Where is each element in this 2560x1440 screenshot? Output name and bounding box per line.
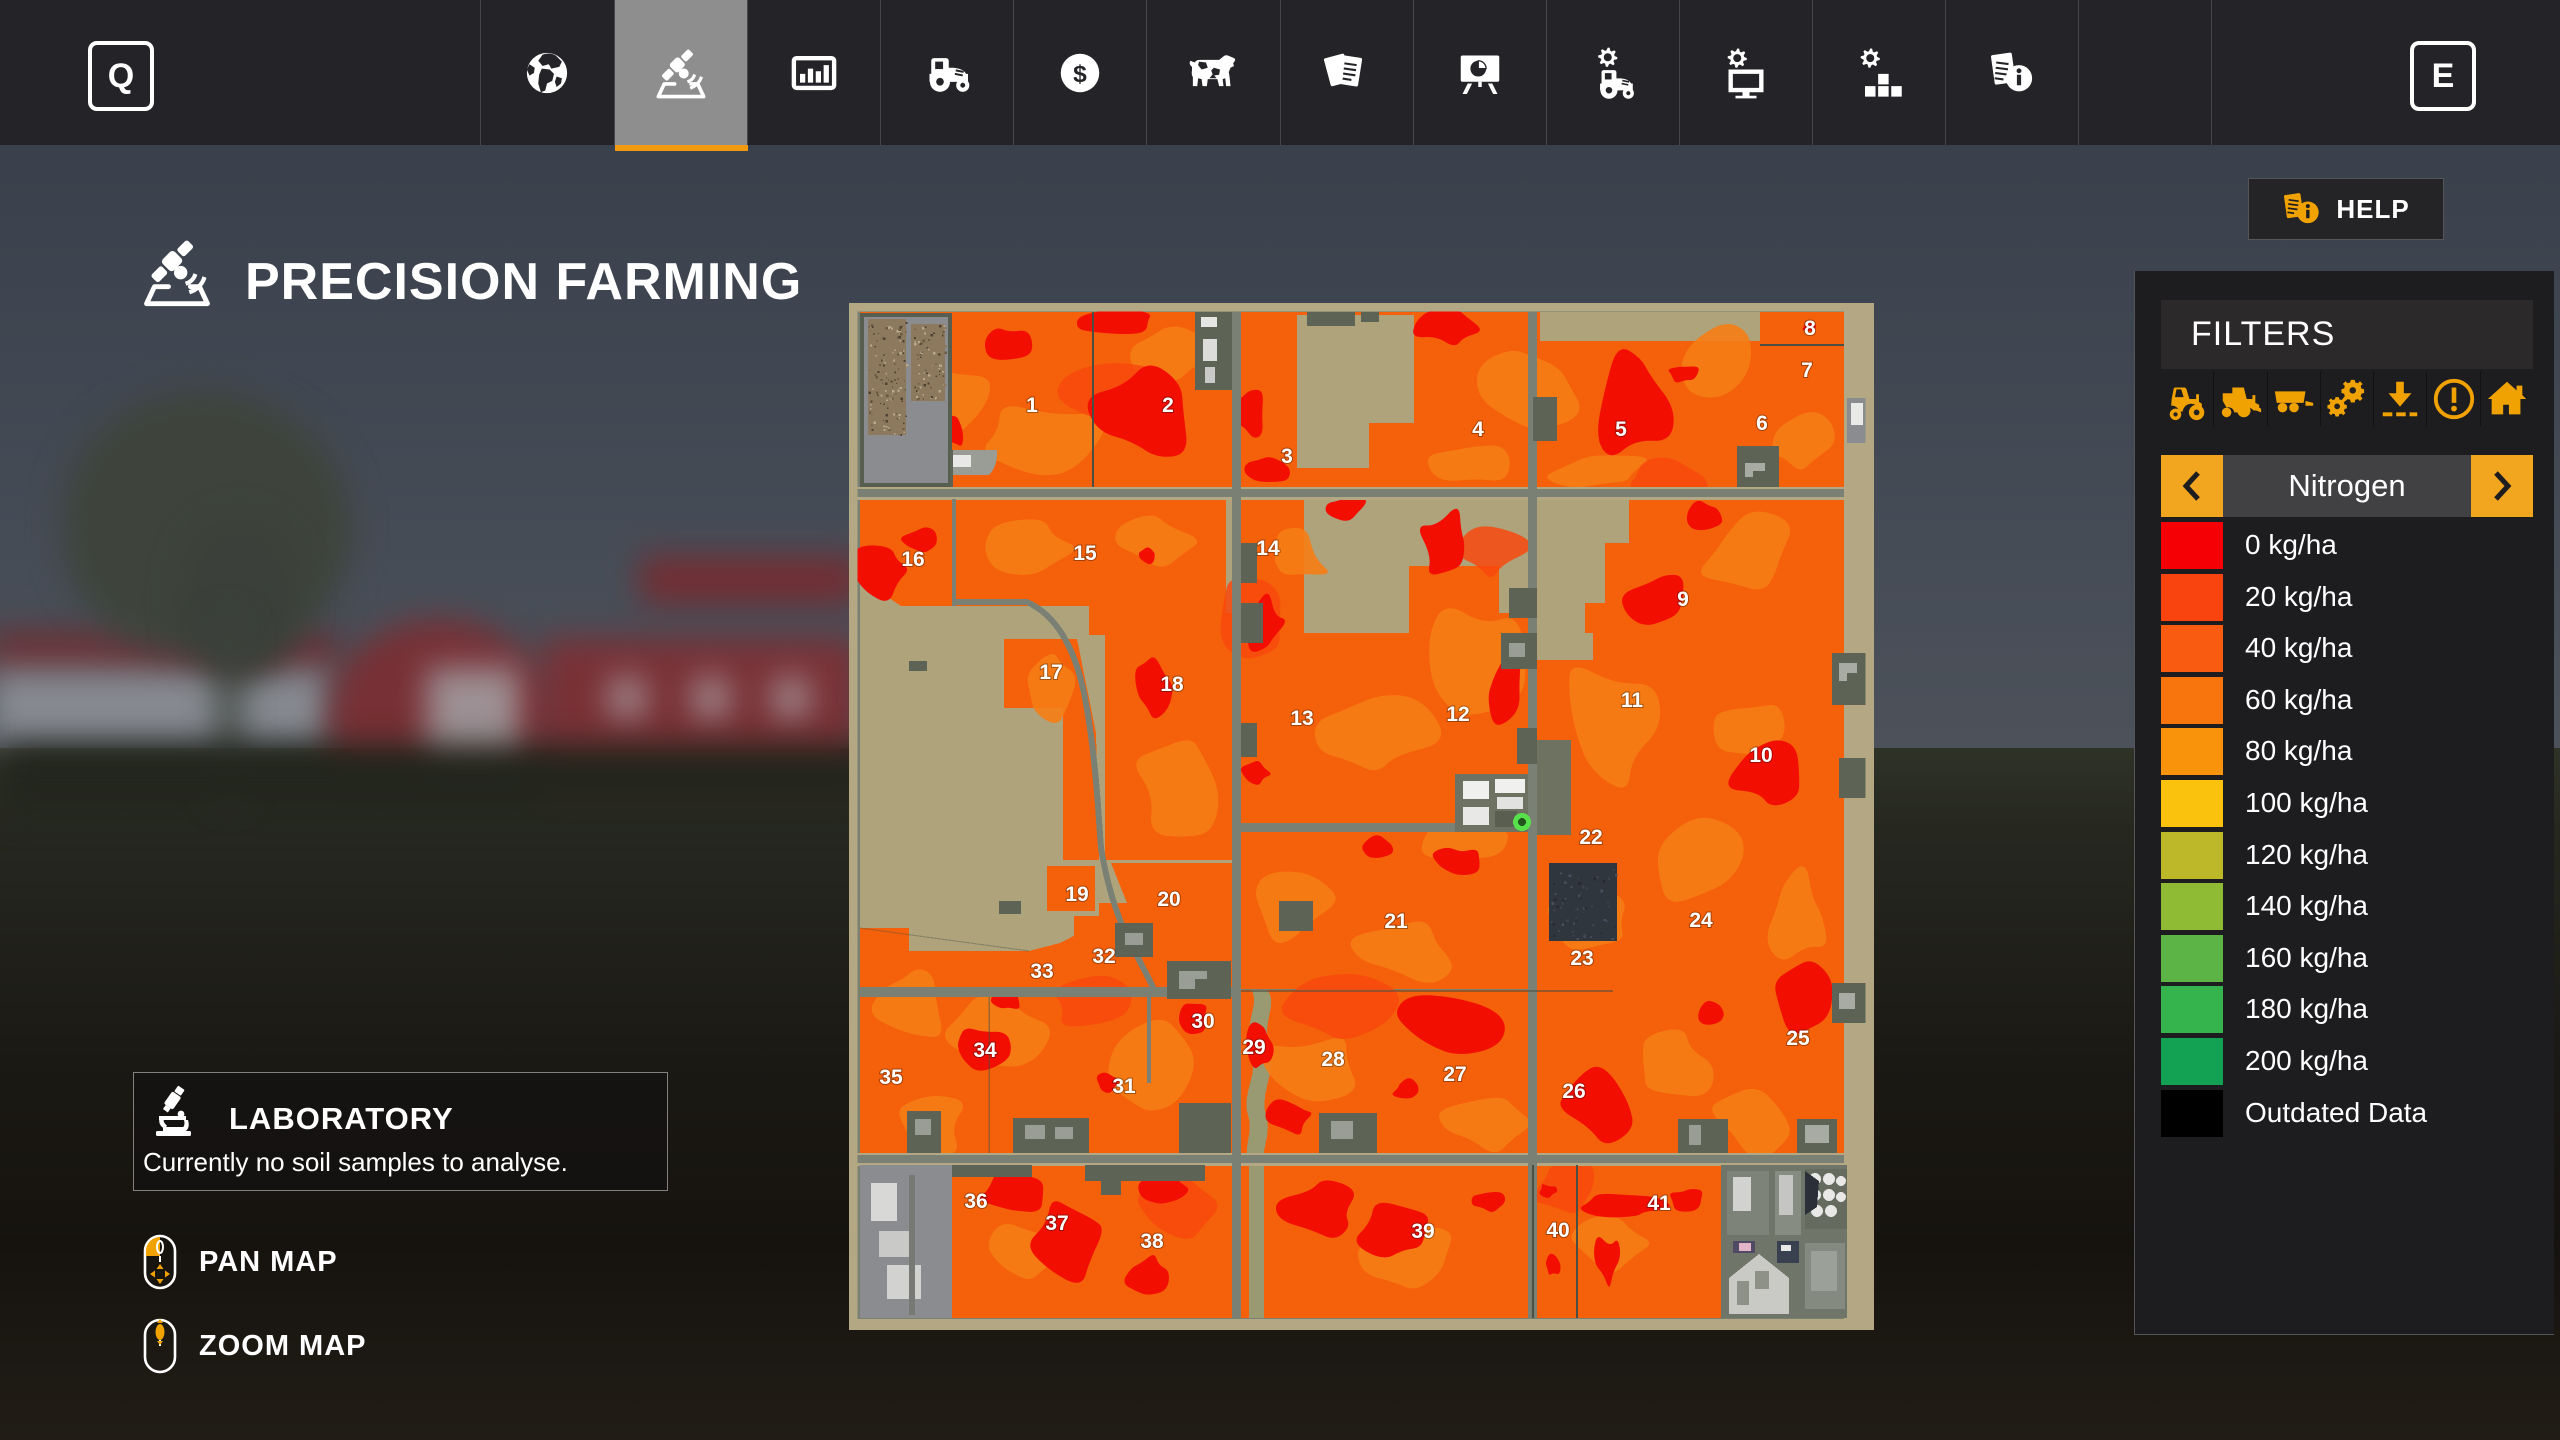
svg-text:1: 1 xyxy=(1026,394,1038,417)
svg-text:41: 41 xyxy=(1647,1192,1671,1215)
svg-text:14: 14 xyxy=(1256,537,1280,560)
svg-text:$: $ xyxy=(1073,60,1087,87)
svg-text:3: 3 xyxy=(1281,445,1293,468)
svg-text:39: 39 xyxy=(1411,1220,1434,1243)
svg-text:33: 33 xyxy=(1030,960,1053,983)
svg-text:31: 31 xyxy=(1112,1075,1136,1098)
svg-text:29: 29 xyxy=(1242,1036,1265,1059)
svg-text:28: 28 xyxy=(1321,1048,1345,1071)
svg-text:17: 17 xyxy=(1039,661,1062,684)
svg-text:19: 19 xyxy=(1065,883,1088,906)
svg-text:9: 9 xyxy=(1677,588,1689,611)
svg-text:5: 5 xyxy=(1615,418,1627,441)
svg-text:32: 32 xyxy=(1092,945,1115,968)
svg-text:2: 2 xyxy=(1162,394,1174,417)
svg-text:22: 22 xyxy=(1579,826,1602,849)
svg-text:20: 20 xyxy=(1157,888,1180,911)
svg-text:6: 6 xyxy=(1756,412,1768,435)
svg-text:38: 38 xyxy=(1140,1230,1164,1253)
svg-text:16: 16 xyxy=(901,548,924,571)
svg-text:12: 12 xyxy=(1446,703,1469,726)
svg-text:35: 35 xyxy=(879,1066,903,1089)
svg-text:34: 34 xyxy=(973,1039,997,1062)
svg-text:37: 37 xyxy=(1045,1212,1068,1235)
svg-text:21: 21 xyxy=(1384,910,1408,933)
svg-text:26: 26 xyxy=(1562,1080,1585,1103)
svg-text:13: 13 xyxy=(1290,707,1313,730)
svg-text:4: 4 xyxy=(1472,418,1484,441)
svg-text:11: 11 xyxy=(1621,689,1644,712)
svg-text:40: 40 xyxy=(1546,1219,1569,1242)
svg-text:25: 25 xyxy=(1786,1027,1810,1050)
svg-text:36: 36 xyxy=(964,1190,987,1213)
svg-text:24: 24 xyxy=(1689,909,1713,932)
svg-text:30: 30 xyxy=(1191,1010,1214,1033)
svg-text:23: 23 xyxy=(1570,947,1593,970)
svg-text:8: 8 xyxy=(1804,317,1816,340)
svg-text:7: 7 xyxy=(1801,359,1813,382)
svg-text:18: 18 xyxy=(1160,673,1184,696)
svg-text:10: 10 xyxy=(1749,744,1772,767)
svg-text:15: 15 xyxy=(1073,542,1097,565)
svg-text:27: 27 xyxy=(1443,1063,1466,1086)
